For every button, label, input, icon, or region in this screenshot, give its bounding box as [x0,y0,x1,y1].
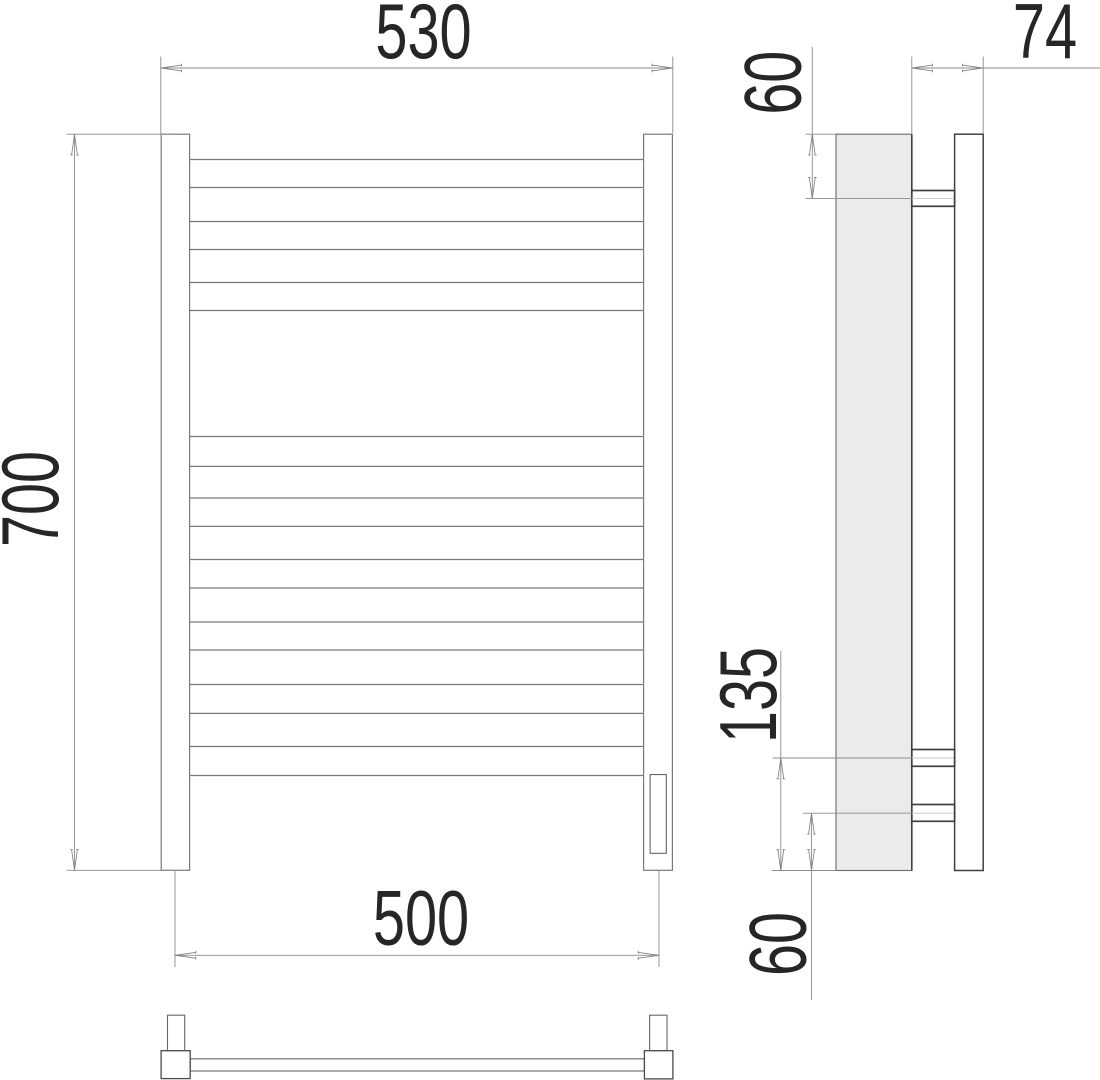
svg-text:135: 135 [702,647,793,743]
svg-text:60: 60 [732,912,823,976]
svg-text:700: 700 [0,451,75,547]
svg-text:60: 60 [727,51,818,115]
svg-text:530: 530 [375,0,471,75]
svg-text:500: 500 [373,874,469,962]
svg-text:74: 74 [1013,0,1077,75]
